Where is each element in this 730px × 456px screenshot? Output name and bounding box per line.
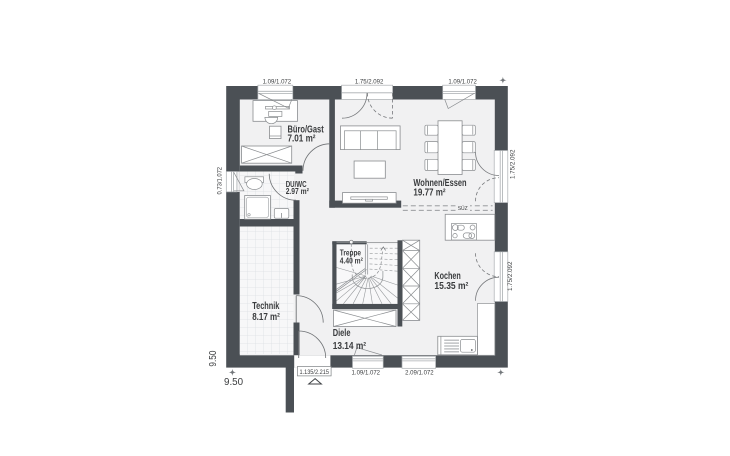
svg-text:1.75/2.092: 1.75/2.092 [507, 261, 514, 291]
svg-text:Diele: Diele [333, 328, 351, 339]
svg-text:1.09/1.072: 1.09/1.072 [352, 369, 381, 376]
svg-text:Technik: Technik [252, 301, 280, 312]
svg-text:2.09/1.072: 2.09/1.072 [405, 369, 434, 376]
svg-text:7.01 m²: 7.01 m² [288, 133, 317, 144]
svg-text:9.50: 9.50 [224, 377, 244, 388]
svg-text:0.73/1.072: 0.73/1.072 [216, 167, 223, 195]
svg-text:13.14 m²: 13.14 m² [333, 341, 367, 352]
svg-text:SÜZ: SÜZ [458, 205, 469, 212]
svg-text:1.09/1.072: 1.09/1.072 [448, 79, 477, 86]
svg-text:2.97 m²: 2.97 m² [286, 187, 309, 196]
svg-text:8.17 m²: 8.17 m² [252, 312, 280, 323]
svg-text:4.40 m²: 4.40 m² [340, 256, 363, 265]
svg-text:15.35 m²: 15.35 m² [434, 281, 469, 292]
svg-text:1.135/2.215: 1.135/2.215 [299, 369, 329, 376]
svg-text:1.75/2.092: 1.75/2.092 [509, 149, 516, 179]
svg-text:9.50: 9.50 [208, 350, 219, 366]
svg-text:19.77 m²: 19.77 m² [413, 188, 446, 199]
svg-text:1.09/1.072: 1.09/1.072 [263, 79, 292, 86]
svg-text:1.75/2.092: 1.75/2.092 [355, 79, 384, 86]
